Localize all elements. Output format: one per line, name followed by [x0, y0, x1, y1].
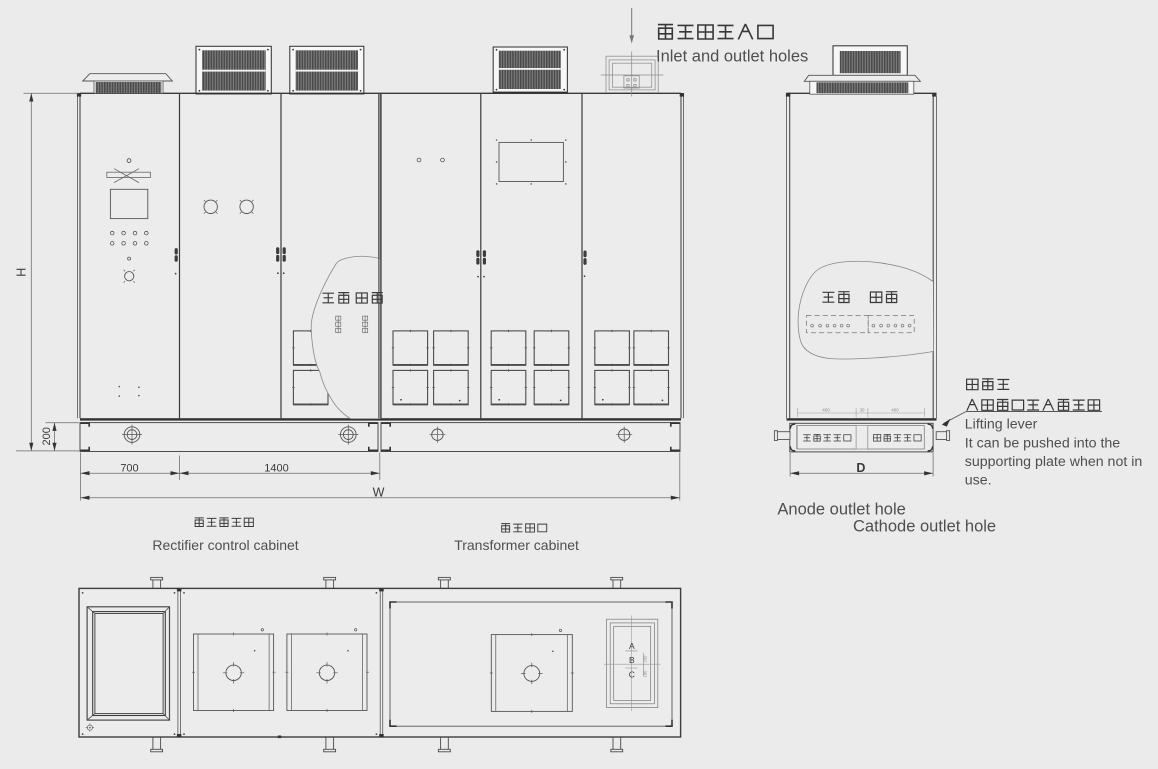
svg-text:A: A	[629, 641, 635, 651]
svg-text:200: 200	[41, 427, 53, 445]
svg-text:400: 400	[891, 408, 899, 413]
svg-text:B: B	[629, 655, 635, 665]
svg-text:180: 180	[643, 670, 648, 678]
svg-text:D: D	[856, 461, 865, 475]
svg-text:30: 30	[859, 408, 865, 413]
svg-text:Lifting lever: Lifting lever	[965, 416, 1038, 432]
svg-text:Inlet and outlet holes: Inlet and outlet holes	[656, 48, 808, 66]
svg-text:use.: use.	[965, 473, 992, 489]
svg-text:400: 400	[822, 408, 830, 413]
svg-text:Transformer cabinet: Transformer cabinet	[454, 537, 579, 553]
svg-text:Anode outlet hole: Anode outlet hole	[777, 501, 905, 519]
svg-text:Rectifier control cabinet: Rectifier control cabinet	[152, 537, 298, 553]
svg-text:H: H	[15, 268, 29, 277]
svg-text:200: 200	[643, 655, 648, 663]
svg-text:700: 700	[120, 463, 138, 475]
svg-text:W: W	[373, 486, 385, 500]
svg-text:supporting plate when not in: supporting plate when not in	[965, 454, 1142, 470]
svg-text:1400: 1400	[264, 463, 288, 475]
svg-text:C: C	[629, 670, 635, 680]
svg-text:It can be pushed into the: It can be pushed into the	[965, 435, 1121, 451]
svg-text:Cathode outlet hole: Cathode outlet hole	[853, 518, 996, 536]
